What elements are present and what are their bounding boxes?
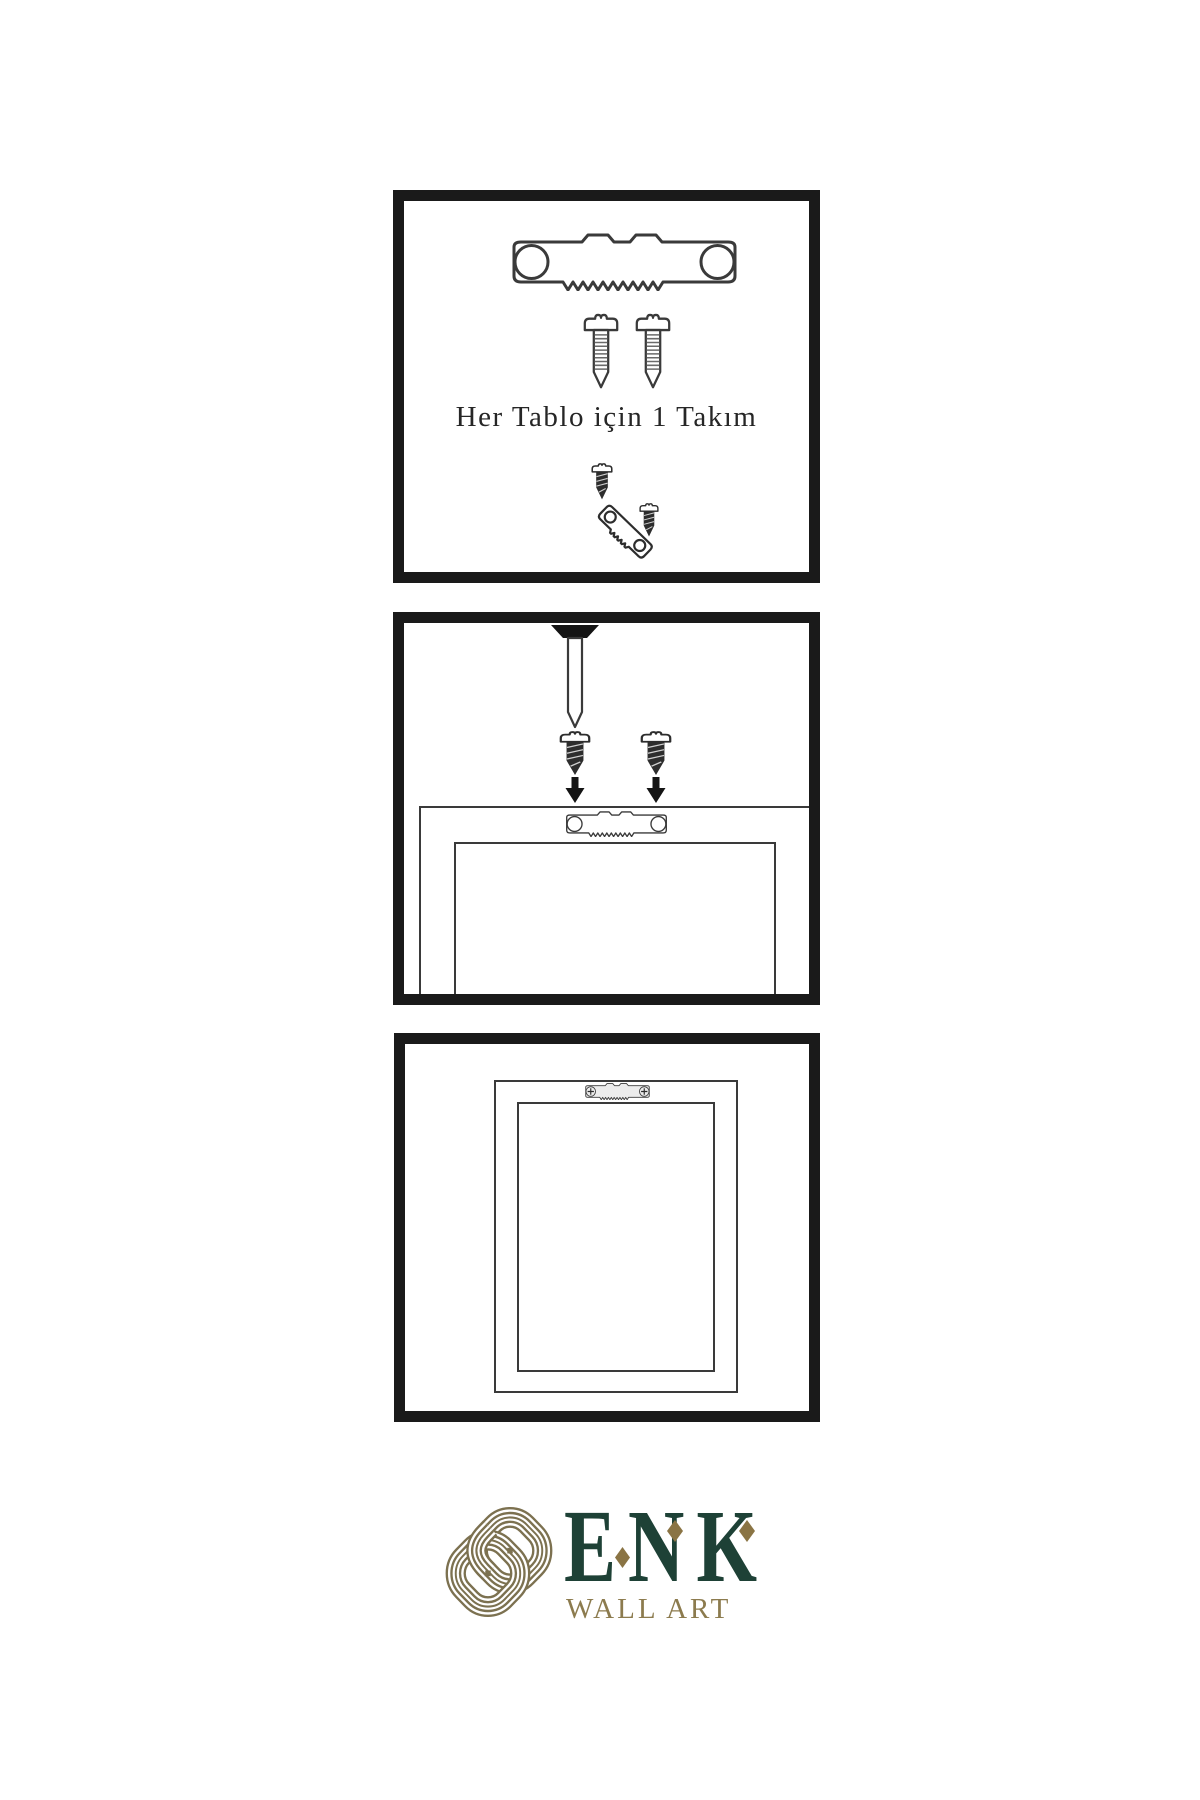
dark-screw-icon [559,731,591,777]
dark-screw-icon [591,463,613,501]
wall-nail-icon [551,625,599,729]
brand-subtitle: WALL ART [566,1594,731,1624]
screw-icon [583,313,619,391]
dark-screw-icon [640,731,672,777]
instruction-sheet: { "document": { "type": "wall-art-hangin… [0,0,1200,1800]
sawtooth-hanger-icon [508,233,741,291]
dark-screw-icon [639,503,659,538]
hung-frame-inner-edge [517,1102,715,1372]
brand-name: ENK [564,1495,769,1599]
down-arrow-icon [646,777,666,803]
step-2-panel [393,612,820,1005]
step-3-panel [394,1033,820,1422]
knot-logo-icon [433,1494,565,1630]
down-arrow-icon [565,777,585,803]
installed-hanger-icon [584,1083,651,1100]
sawtooth-hanger-icon [564,811,669,837]
frame-back-inner-edge [454,842,776,1005]
step-1-panel: Her Tablo için 1 Takım [393,190,820,583]
screw-icon [635,313,671,391]
kit-caption: Her Tablo için 1 Takım [404,401,809,434]
